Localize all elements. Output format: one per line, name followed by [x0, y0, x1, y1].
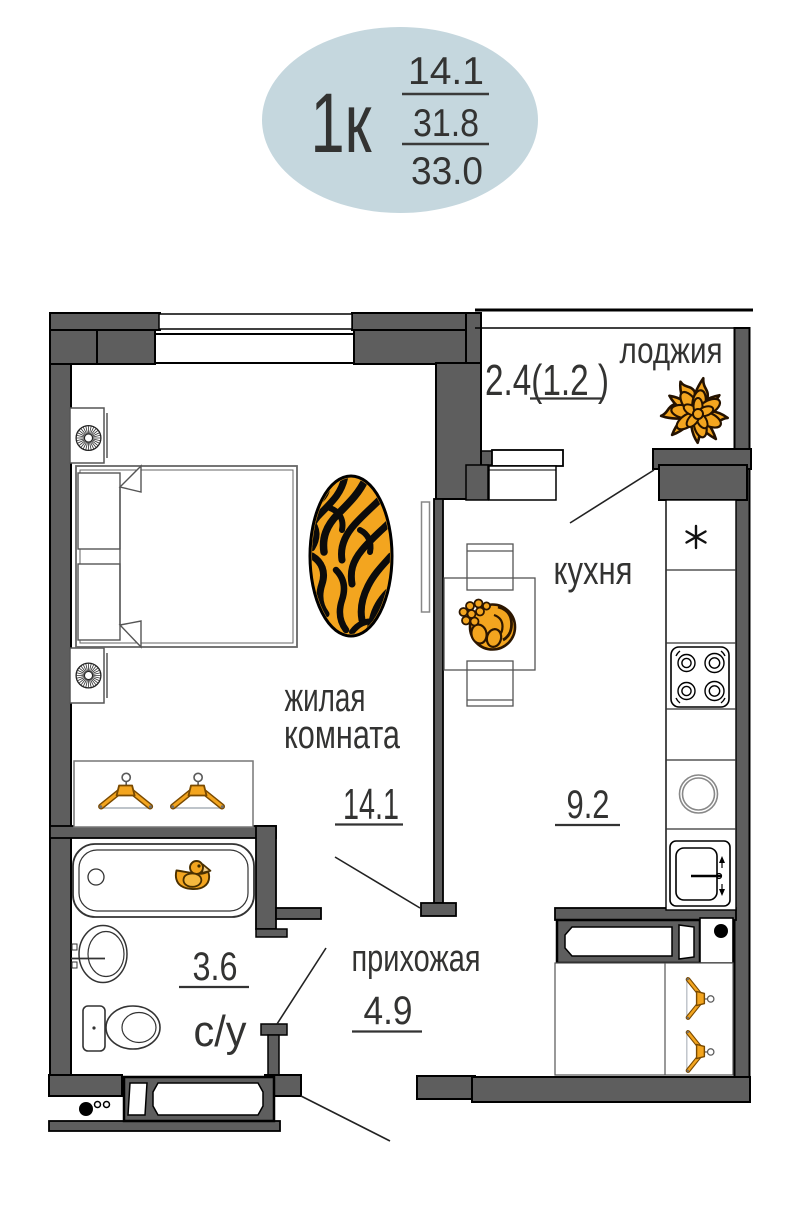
- svg-text:9.2: 9.2: [567, 783, 610, 827]
- svg-text:лоджия: лоджия: [620, 330, 723, 371]
- svg-text:1к: 1к: [311, 76, 373, 170]
- svg-text:31.8: 31.8: [413, 102, 479, 145]
- svg-text:кухня: кухня: [554, 549, 633, 593]
- svg-text:с/у: с/у: [194, 1007, 247, 1056]
- svg-text:прихожая: прихожая: [352, 938, 481, 980]
- svg-text:3.6: 3.6: [193, 945, 238, 989]
- svg-text:14.1: 14.1: [408, 50, 484, 93]
- svg-text:14.1: 14.1: [343, 780, 399, 829]
- svg-text:4.9: 4.9: [364, 989, 413, 1033]
- svg-text:комната: комната: [284, 713, 401, 757]
- svg-text:33.0: 33.0: [411, 150, 483, 193]
